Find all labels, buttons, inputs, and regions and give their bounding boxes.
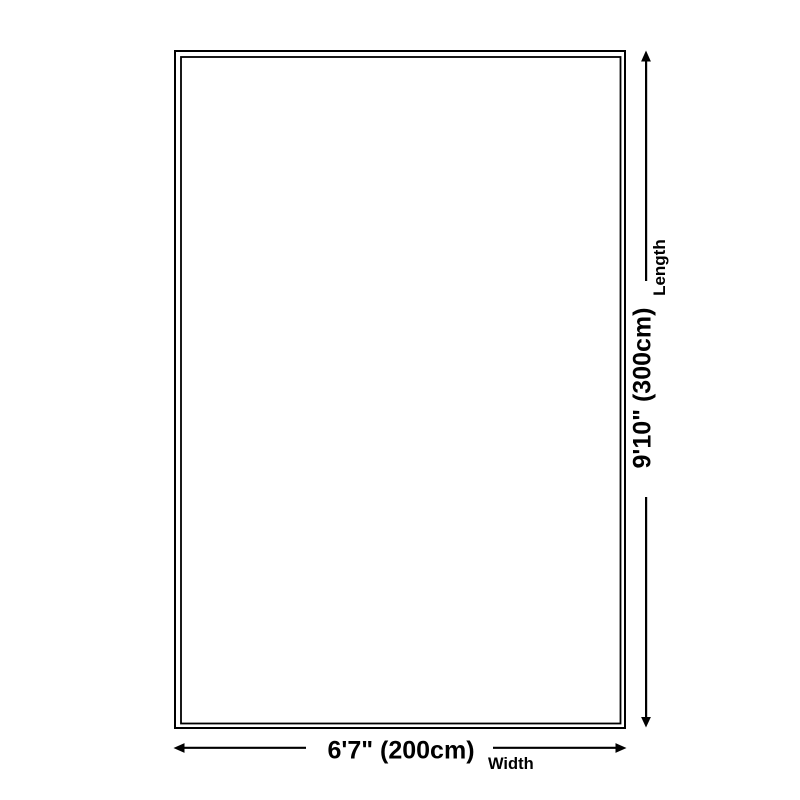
svg-text:Width: Width [488, 755, 534, 773]
svg-text:Length: Length [650, 239, 669, 296]
svg-text:6'7" (200cm): 6'7" (200cm) [327, 737, 474, 765]
svg-text:9'10" (300cm): 9'10" (300cm) [629, 308, 657, 469]
